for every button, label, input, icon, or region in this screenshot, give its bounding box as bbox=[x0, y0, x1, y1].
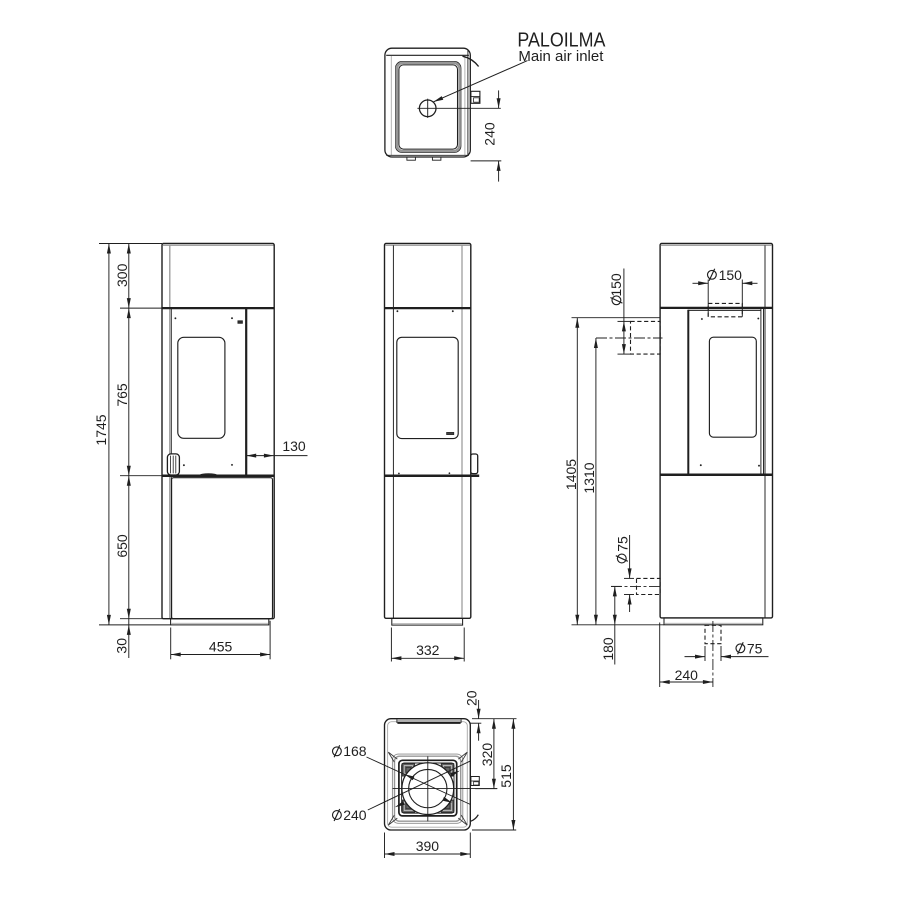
svg-text:75: 75 bbox=[747, 640, 763, 656]
svg-text:300: 300 bbox=[114, 263, 130, 287]
svg-text:390: 390 bbox=[416, 838, 440, 854]
svg-text:30: 30 bbox=[113, 638, 129, 654]
svg-text:150: 150 bbox=[719, 267, 743, 283]
svg-text:150: 150 bbox=[608, 273, 624, 297]
svg-text:1405: 1405 bbox=[563, 459, 579, 490]
svg-text:332: 332 bbox=[416, 642, 440, 658]
svg-text:240: 240 bbox=[481, 122, 497, 146]
svg-text:1745: 1745 bbox=[93, 414, 109, 445]
svg-text:168: 168 bbox=[343, 743, 367, 759]
svg-text:180: 180 bbox=[600, 637, 616, 661]
svg-text:75: 75 bbox=[614, 536, 630, 552]
svg-text:320: 320 bbox=[479, 743, 495, 767]
svg-text:455: 455 bbox=[209, 638, 233, 654]
svg-text:1310: 1310 bbox=[581, 462, 597, 493]
svg-text:130: 130 bbox=[282, 438, 306, 454]
svg-text:20: 20 bbox=[463, 690, 479, 706]
svg-text:650: 650 bbox=[114, 534, 130, 558]
svg-text:Main air inlet: Main air inlet bbox=[518, 48, 604, 65]
svg-text:515: 515 bbox=[498, 764, 514, 788]
svg-text:240: 240 bbox=[343, 807, 367, 823]
svg-text:765: 765 bbox=[114, 383, 130, 407]
svg-text:240: 240 bbox=[675, 667, 699, 683]
